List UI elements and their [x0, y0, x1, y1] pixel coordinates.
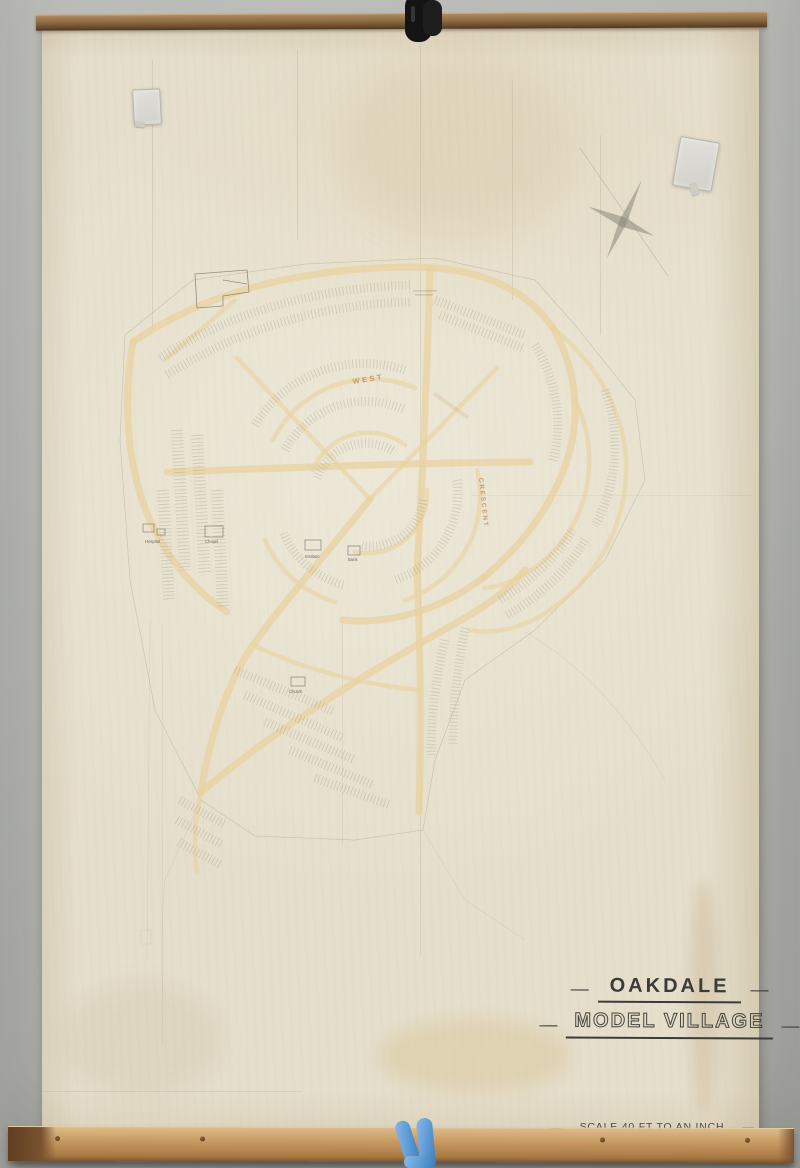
- stain-top-center: [342, 60, 572, 240]
- road-crescent-inner: [313, 433, 427, 554]
- plot-row: [163, 490, 223, 608]
- photograph-of-wall-map: WEST CRESCENT Hospital Chapel Institute …: [0, 0, 800, 1168]
- north-star-icon: [560, 144, 690, 284]
- road: [253, 645, 420, 690]
- boundary-extension: [162, 632, 665, 998]
- institute-building: [305, 540, 321, 550]
- clamp-highlight: [411, 6, 415, 22]
- plot-row: [431, 628, 465, 755]
- plot-row: [435, 300, 525, 348]
- church-building: [291, 677, 305, 686]
- gloved-knuckle: [404, 1156, 436, 1168]
- chapel-building: [205, 526, 223, 537]
- plot-row: [500, 530, 585, 615]
- dash-ornament: —: [539, 1015, 557, 1033]
- field-track: [141, 620, 151, 960]
- road: [128, 342, 227, 612]
- plot-row: [595, 390, 615, 526]
- map-subtitle: MODEL VILLAGE: [566, 1009, 772, 1039]
- illegible-label: [415, 294, 433, 296]
- village-plan-drawing: WEST CRESCENT Hospital Chapel Institute …: [105, 240, 670, 1000]
- street-label-west: WEST: [352, 372, 385, 386]
- stain-bottom-left: [62, 985, 222, 1095]
- hanging-clamp: [396, 0, 448, 44]
- road: [343, 578, 483, 621]
- repair-patch-left-pin: [135, 120, 146, 127]
- paper-crack: [297, 50, 298, 240]
- clamp-lobe: [423, 0, 442, 36]
- illegible-label: [413, 290, 437, 292]
- plot-row: [535, 345, 558, 462]
- dash-ornament: —: [571, 979, 589, 997]
- roller-end-cap-left: [8, 1127, 56, 1161]
- paper-crease: [42, 1091, 302, 1092]
- map-title: OAKDALE: [598, 975, 742, 1004]
- building-label-chapel: Chapel: [205, 539, 218, 544]
- roller-screw: [745, 1138, 750, 1143]
- road: [201, 499, 370, 792]
- roller-screw: [55, 1136, 60, 1141]
- roller-end-cap-right: [778, 1129, 794, 1163]
- map-title-block: — OAKDALE — — MODEL VILLAGE —: [547, 974, 792, 1039]
- title-row-oakdale: — OAKDALE —: [571, 974, 769, 1003]
- title-row-model-village: — MODEL VILLAGE —: [539, 1009, 799, 1039]
- dash-ornament: —: [750, 980, 768, 998]
- plot-row-fan: [235, 670, 390, 805]
- roller-screw: [600, 1138, 605, 1143]
- dash-ornament: —: [781, 1016, 799, 1034]
- road: [195, 792, 201, 872]
- building-label-institute: Institute: [305, 554, 320, 559]
- road-crescent-mid: [265, 379, 480, 602]
- roller-screw: [200, 1136, 205, 1141]
- plot-row: [177, 800, 225, 865]
- map-paper-sheet: WEST CRESCENT Hospital Chapel Institute …: [42, 25, 759, 1135]
- building-label-bank: Bank: [348, 557, 358, 562]
- building-label-church: Church: [289, 689, 303, 694]
- building-label-hospital: Hospital: [145, 539, 160, 544]
- plot-row: [177, 430, 205, 575]
